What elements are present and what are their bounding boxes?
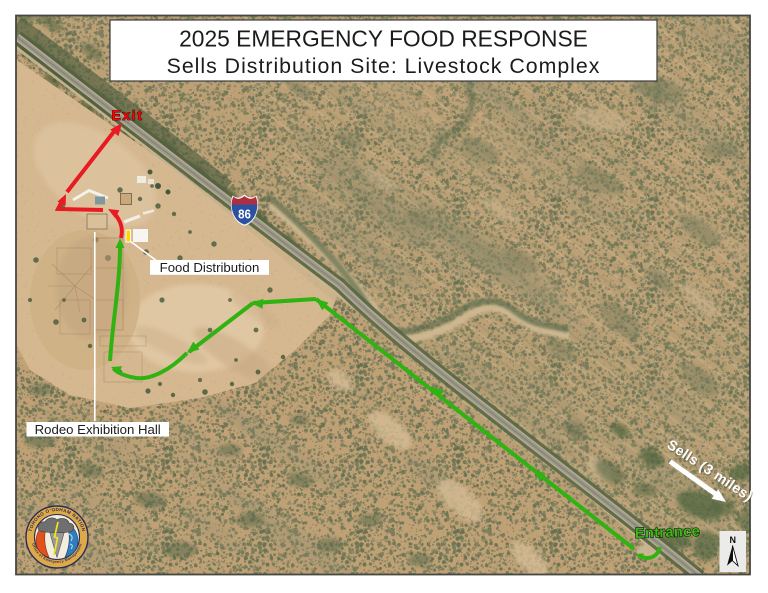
svg-text:Rodeo Exhibition Hall: Rodeo Exhibition Hall bbox=[35, 422, 161, 437]
svg-text:2025 EMERGENCY FOOD RESPONSE: 2025 EMERGENCY FOOD RESPONSE bbox=[179, 26, 588, 52]
svg-text:N: N bbox=[729, 535, 736, 545]
svg-text:Sells Distribution Site: Lives: Sells Distribution Site: Livestock Compl… bbox=[167, 54, 601, 78]
svg-text:Exit: Exit bbox=[111, 107, 143, 123]
svg-text:86: 86 bbox=[238, 207, 251, 222]
svg-text:Entrance: Entrance bbox=[635, 524, 701, 542]
svg-text:Food Distribution: Food Distribution bbox=[160, 260, 260, 275]
